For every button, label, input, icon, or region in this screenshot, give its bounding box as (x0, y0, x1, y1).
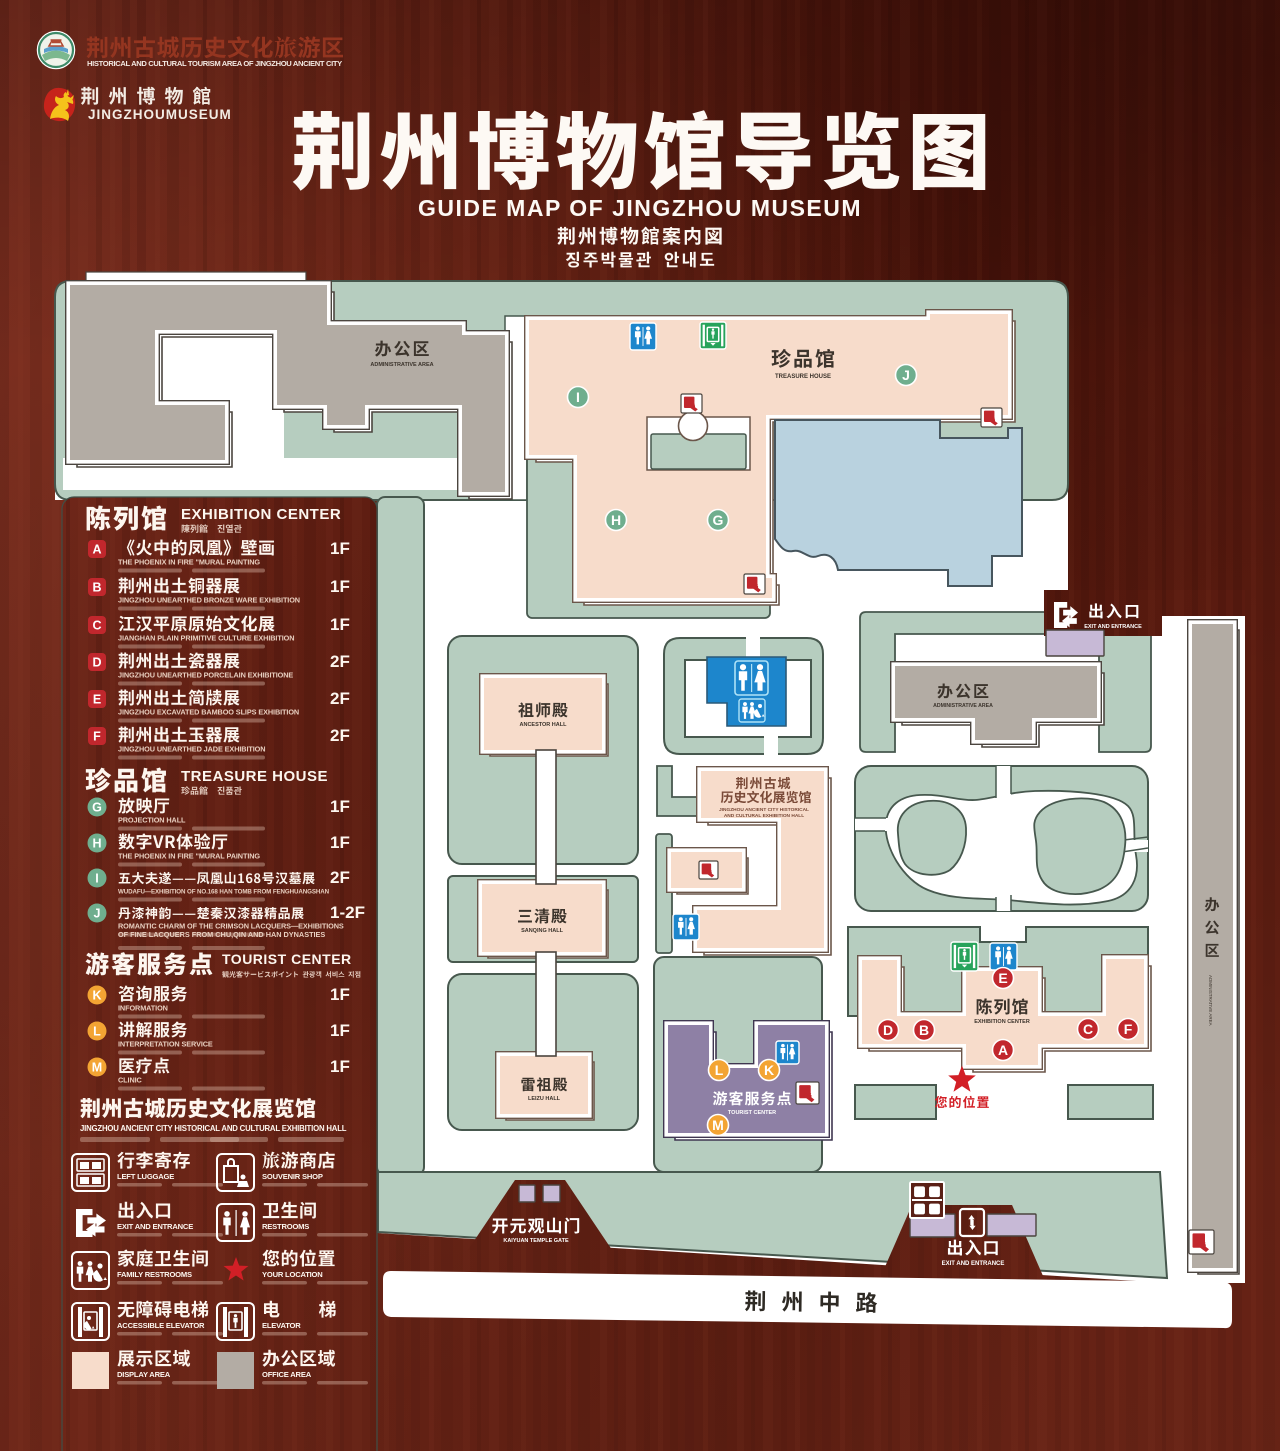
svg-text:A: A (92, 543, 101, 557)
svg-text:FAMILY RESTROOMS: FAMILY RESTROOMS (117, 1270, 192, 1279)
svg-text:1-2F: 1-2F (330, 903, 365, 922)
svg-text:ADMINISTRATIVE AREA: ADMINISTRATIVE AREA (370, 362, 433, 368)
svg-text:SANQING HALL: SANQING HALL (521, 928, 564, 934)
svg-text:F: F (1124, 1021, 1133, 1037)
svg-text:I: I (95, 872, 98, 886)
svg-text:YOUR LOCATION: YOUR LOCATION (262, 1270, 323, 1279)
svg-text:INTERPRETATION SERVICE: INTERPRETATION SERVICE (118, 1040, 213, 1049)
svg-text:1F: 1F (330, 1021, 350, 1040)
svg-text:JINGZHOU UNEARTHED JADE EXHIBI: JINGZHOU UNEARTHED JADE EXHIBITION (118, 745, 265, 754)
svg-text:1F: 1F (330, 615, 350, 634)
svg-text:E: E (998, 970, 1007, 986)
svg-text:I: I (576, 389, 580, 405)
svg-text:ADMINISTRATIVE AREA: ADMINISTRATIVE AREA (1208, 975, 1213, 1026)
svg-text:G: G (92, 801, 102, 815)
svg-text:1F: 1F (330, 985, 350, 1004)
svg-text:GUIDE MAP OF JINGZHOU MUSEUM: GUIDE MAP OF JINGZHOU MUSEUM (418, 195, 862, 221)
svg-text:AND CULTURAL EXHIBITION HALL: AND CULTURAL EXHIBITION HALL (724, 813, 804, 819)
svg-text:E: E (93, 693, 101, 707)
svg-text:2F: 2F (330, 652, 350, 671)
svg-text:L: L (93, 1025, 101, 1039)
svg-text:EXIT AND ENTRANCE: EXIT AND ENTRANCE (942, 1261, 1005, 1267)
svg-text:TOURIST CENTER: TOURIST CENTER (728, 1110, 776, 1116)
svg-text:B: B (92, 581, 101, 595)
svg-text:LEIZU HALL: LEIZU HALL (528, 1096, 561, 1102)
svg-text:EXIT AND ENTRANCE: EXIT AND ENTRANCE (117, 1222, 193, 1231)
svg-text:JINGZHOU UNEARTHED PORCELAIN E: JINGZHOU UNEARTHED PORCELAIN EXHIBITIONE (118, 671, 293, 680)
svg-text:A: A (998, 1042, 1008, 1058)
svg-text:1F: 1F (330, 797, 350, 816)
svg-text:JINGZHOU EXCAVATED BAMBOO SLIP: JINGZHOU EXCAVATED BAMBOO SLIPS EXHIBITI… (118, 708, 299, 717)
svg-text:ACCESSIBLE ELEVATOR: ACCESSIBLE ELEVATOR (117, 1321, 205, 1330)
svg-text:C: C (92, 619, 101, 633)
svg-text:TOURIST CENTER: TOURIST CENTER (222, 951, 352, 967)
svg-text:WUDAFU—EXHIBITION OF NO.168 HA: WUDAFU—EXHIBITION OF NO.168 HAN TOMB FRO… (118, 889, 330, 896)
svg-text:J: J (902, 367, 910, 383)
svg-text:M: M (712, 1117, 724, 1133)
svg-text:K: K (764, 1062, 774, 1078)
svg-text:JINGZHOU ANCIENT CITY HISTORIC: JINGZHOU ANCIENT CITY HISTORICAL (719, 807, 809, 813)
svg-text:F: F (93, 730, 101, 744)
svg-text:EXIT AND ENTRANCE: EXIT AND ENTRANCE (1084, 624, 1142, 630)
svg-text:D: D (883, 1022, 893, 1038)
svg-text:J: J (94, 907, 101, 921)
svg-text:OFFICE AREA: OFFICE AREA (262, 1370, 312, 1379)
svg-text:C: C (1083, 1021, 1093, 1037)
svg-text:LEFT LUGGAGE: LEFT LUGGAGE (117, 1172, 174, 1181)
svg-text:2F: 2F (330, 726, 350, 745)
svg-text:G: G (713, 512, 724, 528)
svg-text:OF FINE LACQUERS FROM CHU,QIN: OF FINE LACQUERS FROM CHU,QIN AND HAN DY… (118, 930, 325, 939)
svg-text:ELEVATOR: ELEVATOR (262, 1321, 301, 1330)
svg-text:THE PHOENIX IN FIRE "MURAL PAI: THE PHOENIX IN FIRE "MURAL PAINTING (118, 852, 260, 861)
svg-text:D: D (92, 656, 101, 670)
svg-text:ADMINISTRATIVE AREA: ADMINISTRATIVE AREA (933, 703, 993, 709)
svg-text:1F: 1F (330, 1057, 350, 1076)
svg-text:EXHIBITION CENTER: EXHIBITION CENTER (974, 1019, 1030, 1025)
svg-text:2F: 2F (330, 689, 350, 708)
svg-text:TREASURE HOUSE: TREASURE HOUSE (775, 374, 831, 380)
svg-text:K: K (92, 989, 101, 1003)
svg-text:RESTROOMS: RESTROOMS (262, 1222, 309, 1231)
svg-text:ANCESTOR HALL: ANCESTOR HALL (520, 722, 568, 728)
svg-text:JIANGHAN PLAIN PRIMITIVE CULTU: JIANGHAN PLAIN PRIMITIVE CULTURE EXHIBIT… (118, 634, 294, 643)
svg-text:EXHIBITION CENTER: EXHIBITION CENTER (181, 506, 341, 523)
svg-text:TREASURE HOUSE: TREASURE HOUSE (181, 768, 328, 785)
svg-text:SOUVENIR SHOP: SOUVENIR SHOP (262, 1172, 323, 1181)
svg-text:H: H (611, 512, 621, 528)
svg-text:INFORMATION: INFORMATION (118, 1004, 168, 1013)
svg-text:DISPLAY AREA: DISPLAY AREA (117, 1370, 171, 1379)
svg-text:1F: 1F (330, 833, 350, 852)
svg-text:JINGZHOUMUSEUM: JINGZHOUMUSEUM (88, 107, 232, 122)
svg-text:THE PHOENIX IN FIRE "MURAL PAI: THE PHOENIX IN FIRE "MURAL PAINTING (118, 558, 260, 567)
svg-text:KAIYUAN TEMPLE GATE: KAIYUAN TEMPLE GATE (503, 1238, 569, 1244)
svg-text:PROJECTION HALL: PROJECTION HALL (118, 816, 186, 825)
svg-text:1F: 1F (330, 577, 350, 596)
svg-text:CLINIC: CLINIC (118, 1076, 143, 1085)
svg-text:B: B (919, 1022, 929, 1038)
svg-text:1F: 1F (330, 539, 350, 558)
svg-text:2F: 2F (330, 868, 350, 887)
svg-text:M: M (92, 1061, 102, 1075)
svg-text:JINGZHOU UNEARTHED BRONZE WARE: JINGZHOU UNEARTHED BRONZE WARE EXHIBITIO… (118, 596, 300, 605)
svg-text:HISTORICAL AND CULTURAL TOURIS: HISTORICAL AND CULTURAL TOURISM AREA OF … (87, 59, 342, 68)
svg-text:JINGZHOU ANCIENT CITY HISTORIC: JINGZHOU ANCIENT CITY HISTORICAL AND CUL… (80, 1124, 347, 1133)
svg-text:L: L (715, 1062, 724, 1078)
svg-text:H: H (92, 837, 101, 851)
